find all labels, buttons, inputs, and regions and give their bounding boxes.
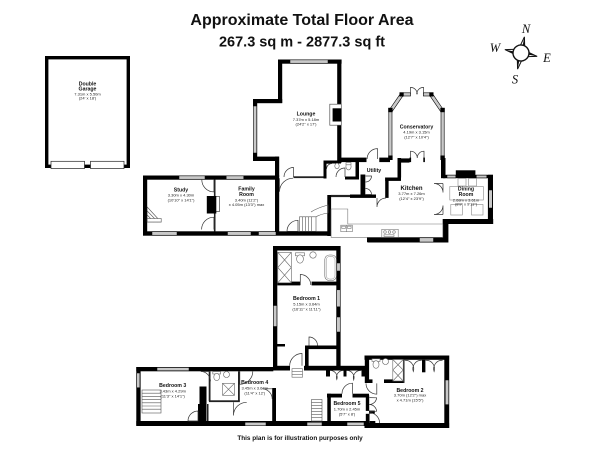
svg-text:N: N — [521, 22, 531, 36]
svg-text:(10'10" x 14'1"): (10'10" x 14'1") — [168, 198, 195, 203]
svg-text:(11'4" x 12'): (11'4" x 12') — [244, 391, 265, 396]
svg-text:W: W — [490, 41, 502, 55]
svg-text:x 4.71m (15'5"): x 4.71m (15'5") — [397, 398, 425, 403]
svg-text:(24'2" x 17'): (24'2" x 17') — [296, 122, 318, 127]
svg-text:Utility: Utility — [367, 168, 382, 174]
svg-text:(11'3" x 14'1"): (11'3" x 14'1") — [161, 394, 186, 399]
svg-text:E: E — [542, 51, 551, 65]
svg-text:This plan is for illustration: This plan is for illustration purposes o… — [237, 435, 363, 442]
svg-text:267.3 sq m - 2877.3 sq ft: 267.3 sq m - 2877.3 sq ft — [219, 35, 385, 51]
svg-text:(24' x 18'): (24' x 18') — [79, 96, 97, 101]
svg-text:x 4.05m (13'3") max: x 4.05m (13'3") max — [229, 202, 265, 207]
svg-text:Approximate Total Floor Area: Approximate Total Floor Area — [190, 12, 413, 29]
svg-text:(5'7" x 8'): (5'7" x 8') — [339, 412, 356, 417]
svg-text:(8'9" x 9'11"): (8'9" x 9'11") — [455, 202, 478, 207]
svg-text:S: S — [512, 73, 519, 87]
svg-text:(12'7" x 10'4"): (12'7" x 10'4") — [404, 134, 429, 139]
svg-text:(12'4" x 23'9"): (12'4" x 23'9") — [399, 196, 424, 201]
svg-text:(16'11" x 11'11"): (16'11" x 11'11") — [292, 307, 321, 312]
